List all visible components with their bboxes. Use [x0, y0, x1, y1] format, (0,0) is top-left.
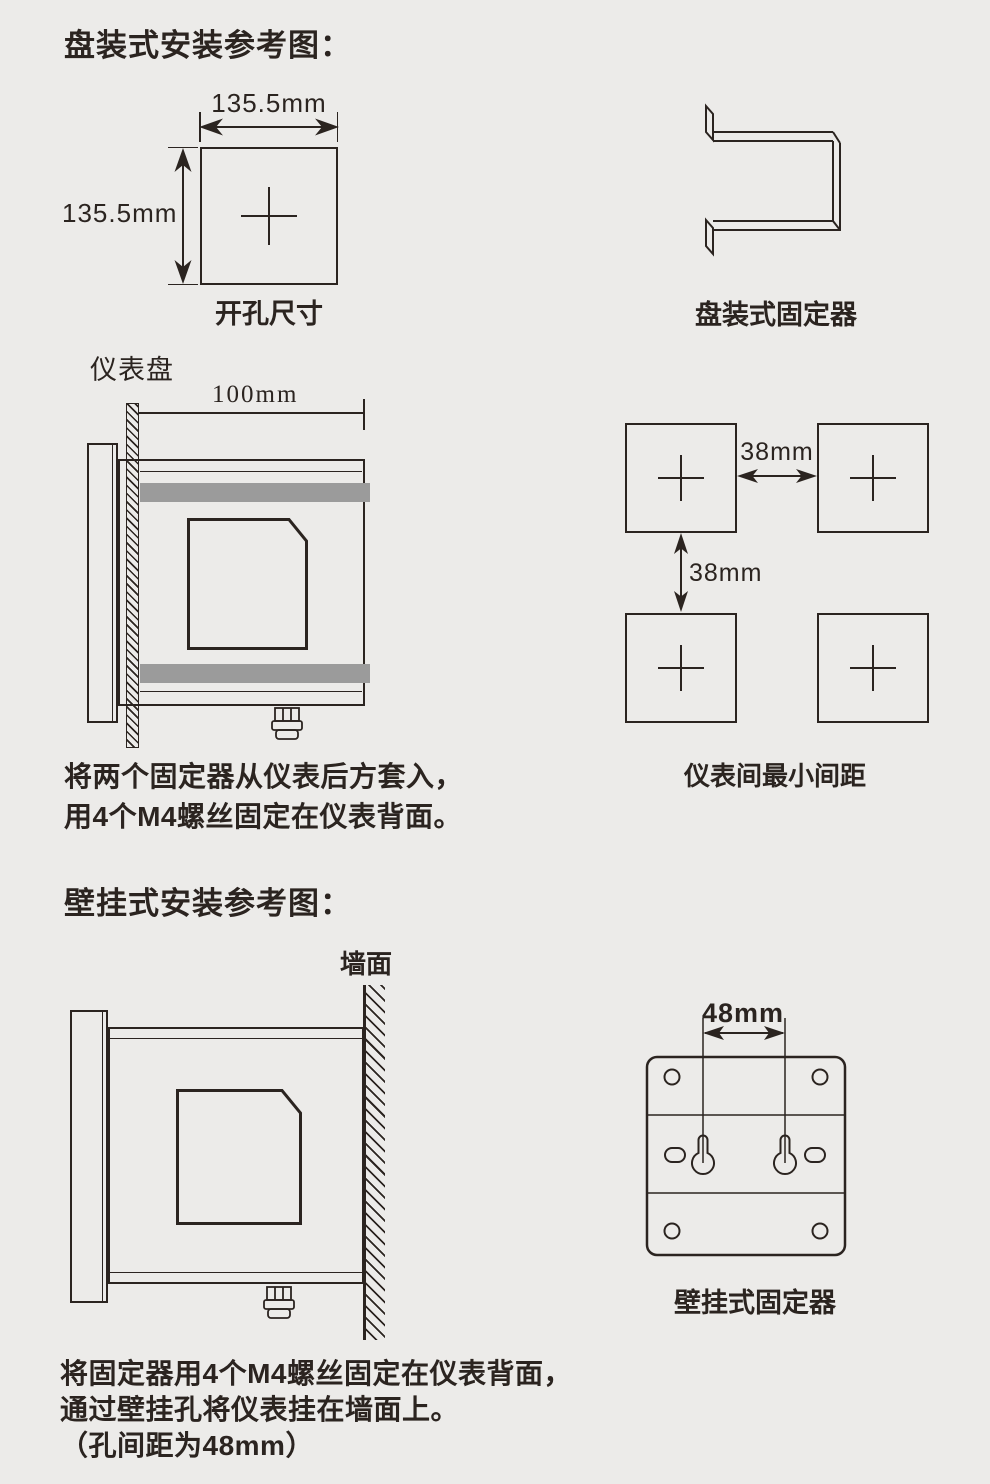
center-cross: [850, 455, 896, 501]
center-cross: [658, 455, 704, 501]
cutout-width-arrow: [199, 116, 339, 138]
instrument-square: [625, 423, 737, 533]
panel-bracket-caption: 盘装式固定器: [676, 293, 876, 332]
cutout-height-arrow: [172, 148, 194, 284]
v-gap-label: 38mm: [689, 559, 762, 588]
bezel-inner-line: [112, 445, 113, 721]
wall-fixer-caption: 壁挂式固定器: [635, 1281, 875, 1320]
wall-note-line2: 通过壁挂孔将仪表挂在墙面上。: [60, 1392, 572, 1428]
cutout-height-label: 135.5mm: [62, 198, 177, 229]
cable-gland: [263, 1286, 295, 1320]
panel-note-line2: 用4个M4螺丝固定在仪表背面。: [64, 797, 463, 837]
body-top-groove: [110, 1038, 362, 1039]
cutout-square: [200, 147, 338, 285]
instrument-square: [817, 423, 929, 533]
display-window-outline: [187, 518, 308, 650]
spacing-caption: 仪表间最小间距: [655, 756, 895, 793]
wall-section-title: 壁挂式安装参考图：: [64, 878, 352, 923]
panel-board-label: 仪表盘: [90, 348, 174, 387]
wall-label: 墙面: [336, 944, 396, 981]
center-cross: [850, 645, 896, 691]
panel-bracket-drawing: [693, 100, 848, 260]
center-cross: [241, 187, 297, 245]
fixer-bar-bottom: [140, 664, 370, 683]
v-gap-arrow: [671, 533, 691, 612]
dim-tick: [199, 112, 201, 142]
depth-dim-line: [138, 412, 364, 414]
wall-note-line3: （孔间距为48mm）: [60, 1428, 572, 1464]
cable-gland: [271, 707, 303, 741]
body-bottom-groove: [110, 1272, 362, 1273]
instrument-square: [625, 613, 737, 723]
cutout-caption: 开孔尺寸: [200, 292, 338, 331]
panel-note: 将两个固定器从仪表后方套入， 用4个M4螺丝固定在仪表背面。: [64, 757, 463, 837]
page: { "colors": { "background": "#ecebe9", "…: [0, 0, 990, 1484]
display-window-outline: [176, 1089, 302, 1225]
wall-note-line1: 将固定器用4个M4螺丝固定在仪表背面，: [60, 1356, 572, 1392]
bezel-inner-line: [102, 1012, 103, 1301]
wall-fixer-plate-drawing: [640, 1016, 860, 1261]
body-bottom-groove: [140, 691, 362, 692]
dim-tick: [363, 399, 365, 430]
h-gap-label: 38mm: [737, 438, 817, 467]
dim-tick: [337, 112, 339, 142]
panel-section-title: 盘装式安装参考图：: [64, 20, 352, 65]
h-gap-arrow: [737, 466, 817, 486]
dim-tick: [168, 284, 198, 286]
depth-dim-label: 100mm: [212, 381, 298, 409]
panel-wall-hatch: [126, 403, 139, 748]
dim-tick: [168, 147, 198, 149]
wall-hatch: [366, 985, 385, 1340]
instrument-square: [817, 613, 929, 723]
front-bezel-side: [87, 443, 118, 723]
center-cross: [658, 645, 704, 691]
cutout-width-label: 135.5mm: [200, 88, 338, 119]
body-top-groove: [140, 471, 362, 472]
wall-note: 将固定器用4个M4螺丝固定在仪表背面， 通过壁挂孔将仪表挂在墙面上。 （孔间距为…: [60, 1356, 572, 1464]
panel-note-line1: 将两个固定器从仪表后方套入，: [64, 757, 463, 797]
fixer-bar-top: [140, 483, 370, 502]
